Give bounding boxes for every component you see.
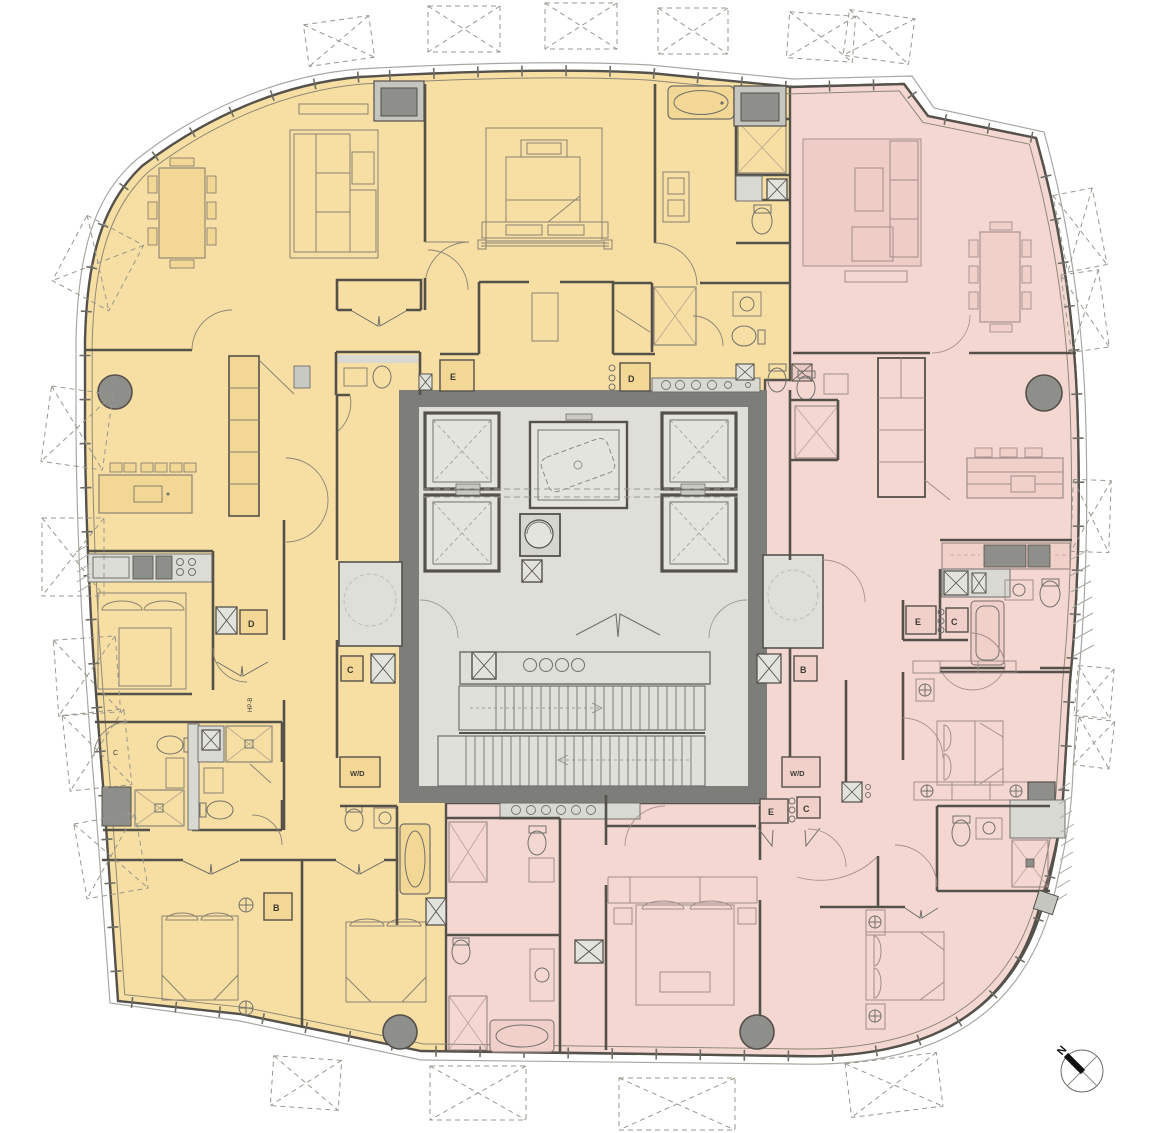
svg-text:D: D (628, 374, 635, 384)
svg-text:W/D: W/D (350, 769, 365, 778)
svg-text:C: C (951, 617, 958, 627)
svg-text:C: C (803, 804, 810, 814)
svg-text:E: E (450, 372, 456, 382)
svg-text:B: B (273, 903, 280, 913)
svg-text:HP-B: HP-B (248, 698, 254, 712)
svg-text:E: E (768, 807, 774, 817)
svg-text:B: B (800, 665, 807, 675)
svg-text:C: C (113, 750, 118, 757)
svg-text:D: D (248, 619, 255, 629)
svg-text:C: C (347, 665, 354, 675)
svg-text:E: E (915, 617, 921, 627)
svg-text:W/D: W/D (790, 769, 805, 778)
